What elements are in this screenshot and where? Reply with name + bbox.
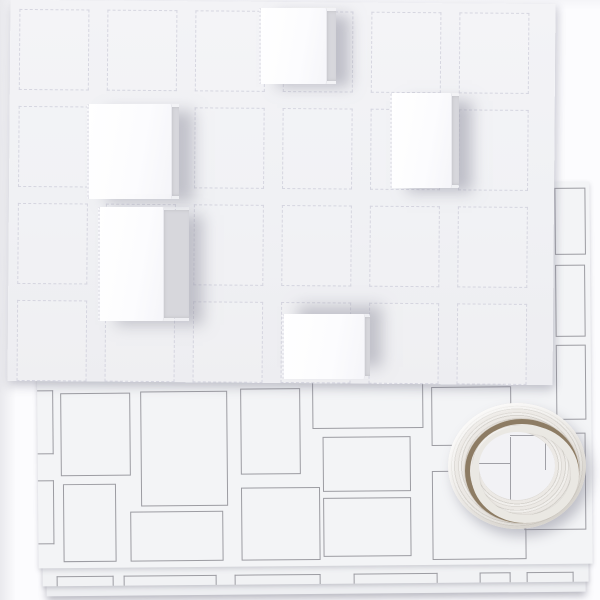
printed-rectangle-partial	[37, 390, 54, 454]
opened-door-box	[87, 104, 179, 199]
calendar-door-outline	[281, 205, 352, 287]
opened-door-box	[282, 314, 370, 379]
adhesive-tape-roll	[448, 403, 586, 529]
printed-rectangle	[555, 265, 586, 337]
box-front-face	[98, 207, 164, 321]
calendar-door-outline	[193, 204, 264, 286]
box-front-face	[259, 8, 327, 84]
printed-line-through-hole	[510, 435, 545, 436]
product-photo-scene	[0, 0, 600, 600]
opened-door-box	[390, 93, 459, 188]
tape-center-hole	[479, 432, 555, 500]
calendar-door-outline	[458, 109, 529, 191]
calendar-door-outline	[193, 301, 264, 383]
printed-rectangle	[241, 487, 321, 561]
printed-rectangle	[556, 345, 587, 420]
printed-rectangle	[60, 393, 131, 477]
calendar-door-outline	[369, 206, 440, 288]
calendar-door-outline	[17, 300, 88, 382]
opened-door-box	[98, 207, 189, 321]
printed-rectangle-peek	[354, 573, 438, 584]
printed-rectangle	[130, 511, 223, 562]
opened-door-box	[259, 8, 336, 84]
calendar-door-outline	[195, 10, 266, 92]
printed-line-through-hole	[479, 463, 510, 464]
printed-rectangle	[140, 391, 228, 507]
calendar-door-outline	[457, 206, 528, 288]
printed-rectangle-peek	[480, 572, 511, 582]
printed-rectangle	[323, 497, 412, 557]
printed-rectangle	[63, 484, 117, 562]
box-side-face	[162, 210, 189, 318]
printed-rectangle-peek	[235, 574, 321, 585]
printed-rectangle	[240, 388, 301, 475]
calendar-door-outline	[18, 106, 89, 188]
printed-rectangle	[323, 436, 411, 492]
calendar-door-outline	[369, 303, 440, 385]
printed-rectangle	[554, 188, 586, 255]
calendar-door-outline	[282, 108, 353, 190]
box-front-face	[87, 104, 172, 199]
box-front-face	[390, 93, 452, 188]
printed-line-through-hole	[545, 435, 546, 470]
printed-rectangle-peek	[527, 572, 574, 582]
printed-rectangle-partial	[38, 480, 55, 544]
calendar-door-outline	[194, 107, 265, 189]
printed-rectangle-peek	[57, 576, 114, 586]
calendar-door-outline	[107, 10, 178, 92]
calendar-door-outline	[371, 12, 442, 94]
calendar-door-outline	[17, 203, 88, 285]
calendar-door-outline	[19, 9, 90, 91]
calendar-door-outline	[459, 12, 530, 94]
calendar-door-outline	[456, 303, 527, 385]
box-front-face	[282, 314, 365, 379]
printed-rectangle-peek	[124, 575, 217, 586]
printed-line-through-hole	[510, 437, 511, 500]
